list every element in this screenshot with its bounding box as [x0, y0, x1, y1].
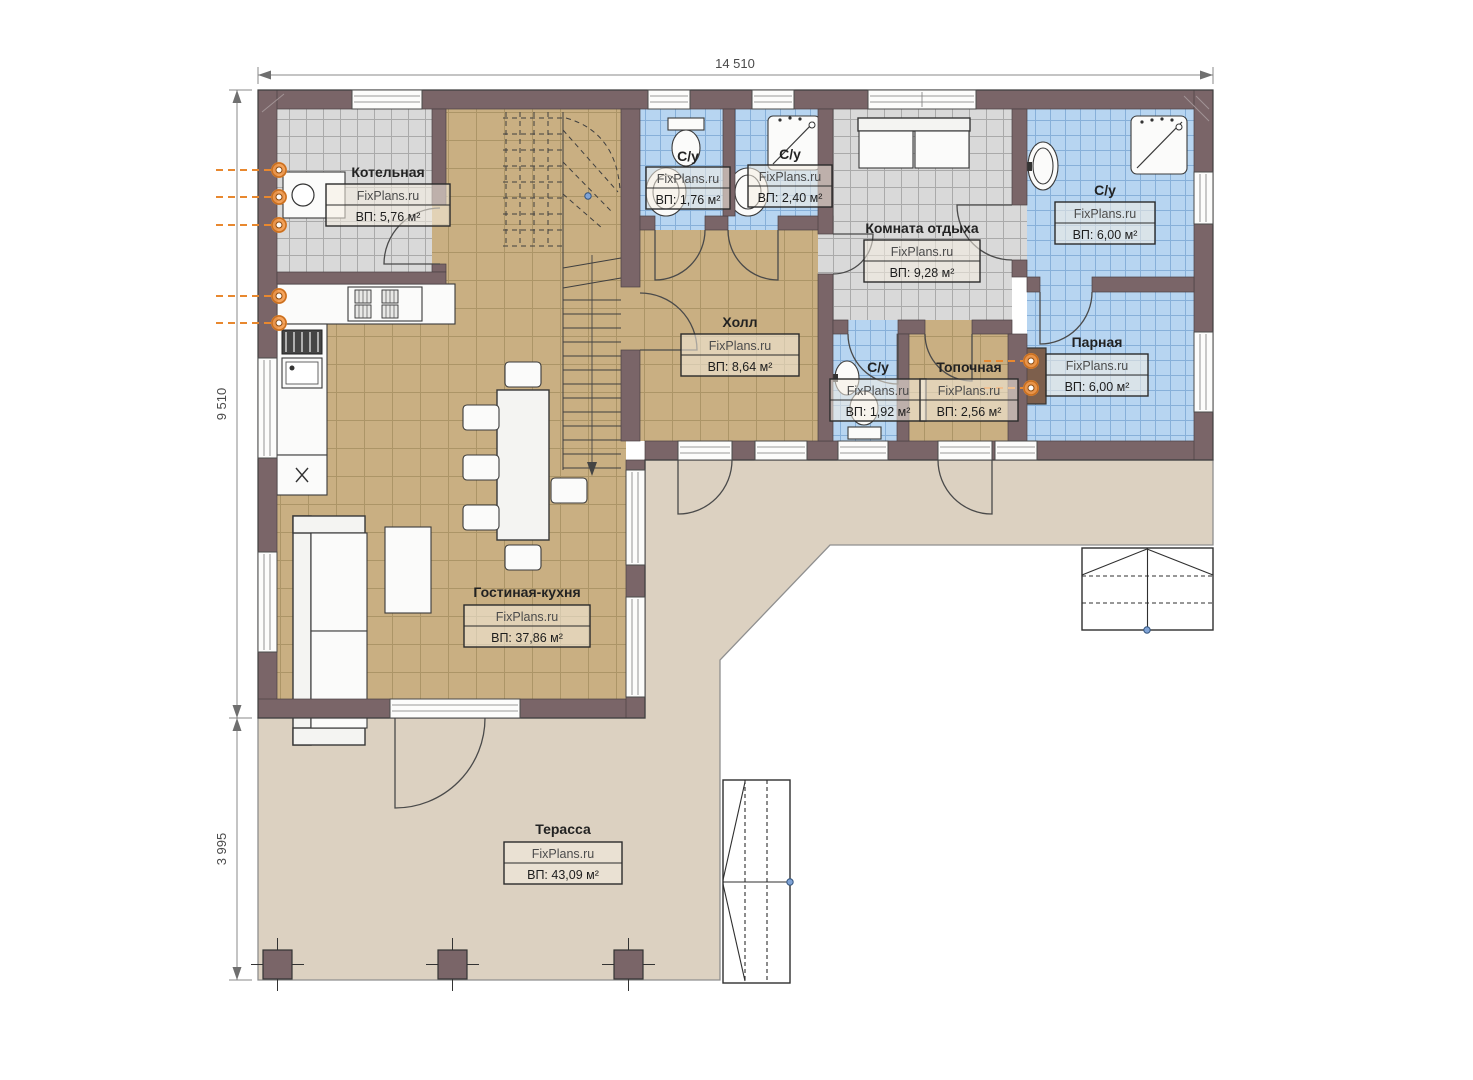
- window: [390, 699, 520, 718]
- wall-segment: [705, 216, 728, 230]
- floor-plan-canvas: КотельнаяFixPlans.ruВП: 5,76 м²С/уFixPla…: [0, 0, 1473, 1080]
- room-name: Терасса: [535, 821, 591, 837]
- toilet-tank: [848, 427, 881, 439]
- wall-segment: [277, 272, 446, 284]
- watermark-text: FixPlans.ru: [657, 172, 720, 186]
- shower-jet-icon: [1150, 118, 1153, 121]
- dim-height-upper: 9 510: [214, 388, 229, 421]
- room-name: С/у: [1094, 182, 1116, 198]
- dining-chair: [463, 455, 499, 480]
- toilet-tank: [668, 118, 704, 130]
- floor-blue: [1040, 277, 1092, 292]
- window: [755, 441, 807, 460]
- room-name: Котельная: [351, 164, 424, 180]
- window: [838, 441, 888, 460]
- room-name: Топочная: [936, 359, 1001, 375]
- floor-gray: [818, 234, 833, 274]
- watermark-text: FixPlans.ru: [759, 170, 822, 184]
- node-marker: [585, 193, 591, 199]
- floor-tan: [925, 320, 972, 334]
- window: [752, 90, 794, 109]
- wall-segment: [1012, 109, 1027, 205]
- shower-jet-icon: [798, 117, 801, 120]
- floor-tan: [621, 287, 640, 350]
- watermark-text: FixPlans.ru: [1066, 359, 1129, 373]
- wall-segment: [1092, 277, 1194, 292]
- window: [1194, 332, 1213, 412]
- room-area: ВП: 6,00 м²: [1073, 228, 1138, 242]
- dim-height-lower: 3 995: [214, 833, 229, 866]
- watermark-text: FixPlans.ru: [938, 384, 1001, 398]
- watermark-text: FixPlans.ru: [891, 245, 954, 259]
- dining-chair: [551, 478, 587, 503]
- room-area: ВП: 1,76 м²: [656, 193, 721, 207]
- room-name: Комната отдыха: [865, 220, 979, 236]
- window: [626, 597, 645, 697]
- window: [938, 441, 992, 460]
- sofa-cushion: [311, 533, 367, 631]
- floor-blue: [655, 216, 705, 230]
- boiler-burner: [292, 184, 314, 206]
- room-area: ВП: 2,56 м²: [937, 405, 1002, 419]
- shower-drain-icon: [809, 122, 815, 128]
- bench-cushion: [915, 131, 969, 168]
- room-name: С/у: [779, 146, 801, 162]
- window: [258, 552, 277, 652]
- wall-segment: [432, 264, 446, 272]
- burner-icon: [355, 290, 371, 303]
- wall-segment: [640, 216, 655, 230]
- dining-chair: [505, 545, 541, 570]
- shower-jet-icon: [1160, 117, 1163, 120]
- watermark-text: FixPlans.ru: [496, 610, 559, 624]
- steps-right: [1082, 548, 1213, 630]
- shower-jet-icon: [1140, 120, 1143, 123]
- burner-icon: [355, 305, 371, 318]
- bench-back: [858, 118, 970, 131]
- floor-blue: [728, 216, 778, 230]
- washbasin-inner: [1033, 148, 1053, 184]
- wall-segment: [1027, 277, 1040, 292]
- room-name: С/у: [867, 359, 889, 375]
- room-name: Холл: [722, 314, 757, 330]
- room-area: ВП: 8,64 м²: [708, 360, 773, 374]
- shower-jet-icon: [788, 116, 791, 119]
- room-area: ВП: 37,86 м²: [491, 631, 563, 645]
- room-name: Гостиная-кухня: [473, 584, 580, 600]
- sofa-armrest-top: [293, 516, 365, 533]
- wall-segment: [833, 320, 848, 334]
- room-area: ВП: 6,00 м²: [1065, 380, 1130, 394]
- sofa-armrest-bottom: [293, 728, 365, 745]
- window: [352, 90, 422, 109]
- bench-cushion: [859, 131, 913, 168]
- watermark-text: FixPlans.ru: [1074, 207, 1137, 221]
- floor-gray: [1012, 205, 1027, 260]
- dining-chair: [505, 362, 541, 387]
- dining-table: [497, 390, 549, 540]
- dining-chair: [463, 505, 499, 530]
- window: [678, 441, 732, 460]
- window: [258, 358, 277, 458]
- shower-drain-icon: [1176, 124, 1182, 130]
- floor-blue: [848, 320, 898, 334]
- window: [648, 90, 690, 109]
- room-name: Парная: [1072, 334, 1123, 350]
- room-area: ВП: 9,28 м²: [890, 266, 955, 280]
- room-area: ВП: 43,09 м²: [527, 868, 599, 882]
- window: [1194, 172, 1213, 224]
- coffee-table: [385, 527, 431, 613]
- wall-segment: [621, 109, 640, 287]
- watermark-text: FixPlans.ru: [532, 847, 595, 861]
- faucet-icon: [290, 366, 295, 371]
- node-marker: [1144, 627, 1150, 633]
- room-area: ВП: 5,76 м²: [356, 210, 421, 224]
- node-marker: [787, 879, 793, 885]
- wall-segment: [1012, 260, 1027, 277]
- dining-chair: [463, 405, 499, 430]
- watermark-text: FixPlans.ru: [709, 339, 772, 353]
- shower-jet-icon: [778, 118, 781, 121]
- watermark-text: FixPlans.ru: [357, 189, 420, 203]
- shower-jet-icon: [1170, 118, 1173, 121]
- watermark-text: FixPlans.ru: [847, 384, 910, 398]
- room-name: С/у: [677, 148, 699, 164]
- faucet-icon: [1027, 162, 1032, 171]
- burner-icon: [382, 290, 398, 303]
- floor-plan-page: КотельнаяFixPlans.ruВП: 5,76 м²С/уFixPla…: [0, 0, 1473, 1080]
- room-label-komnata-otdyha: Комната отдыхаFixPlans.ruВП: 9,28 м²: [864, 220, 980, 282]
- window: [995, 441, 1037, 460]
- dim-width-total: 14 510: [715, 56, 755, 71]
- room-area: ВП: 2,40 м²: [758, 191, 823, 205]
- wall-segment: [972, 320, 1012, 334]
- wall-segment: [621, 350, 640, 441]
- wall-segment: [898, 320, 925, 334]
- window: [626, 470, 645, 565]
- steps-bottom: [723, 780, 790, 983]
- burner-icon: [382, 305, 398, 318]
- sink-basin: [286, 362, 318, 384]
- room-area: ВП: 1,92 м²: [846, 405, 911, 419]
- room-label-gostinaya-kuhnya: Гостиная-кухняFixPlans.ruВП: 37,86 м²: [464, 584, 590, 647]
